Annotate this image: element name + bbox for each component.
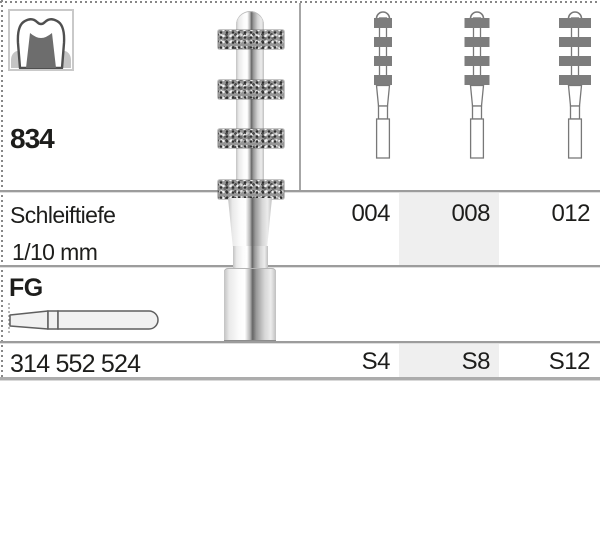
bur-size-schematic-icon [557,11,593,161]
shank-type-label: FG [9,274,43,303]
code-value-s4[interactable]: S4 [300,347,390,377]
bur-fg-shank [224,268,276,341]
table-rule-1 [0,190,600,192]
table-vertical-rule [299,3,301,190]
diamond-depth-marker-bur [210,8,294,348]
code-value-s12[interactable]: S12 [500,347,590,377]
fg-shank-profile-icon [2,301,167,337]
bur-neck [228,198,272,247]
catalog-entry: 834 Schleiftiefe 1/10 mm FG 314 552 524 [0,0,600,541]
grinding-depth-label: Schleiftiefe [10,202,115,229]
diamond-ring-4 [218,180,284,199]
bur-shaft [236,24,264,198]
code-value-s8[interactable]: S8 [400,347,490,377]
table-rule-3 [0,341,600,343]
diamond-ring-1 [218,30,284,49]
indication-icon-box [8,9,74,71]
figure-number: 834 [10,123,54,155]
diamond-ring-2 [218,80,284,99]
size-value-012[interactable]: 012 [500,199,590,229]
crown-preparation-tooth-icon [10,11,72,69]
bur-neck-cylinder [233,246,268,268]
grinding-depth-unit: 1/10 mm [12,239,97,266]
bur-size-schematic-icon [459,11,495,161]
size-value-004[interactable]: 004 [300,199,390,229]
size-value-008[interactable]: 008 [400,199,490,229]
bur-size-schematic-icon [365,11,401,161]
order-number: 314 552 524 [10,350,140,379]
diamond-ring-3 [218,129,284,148]
